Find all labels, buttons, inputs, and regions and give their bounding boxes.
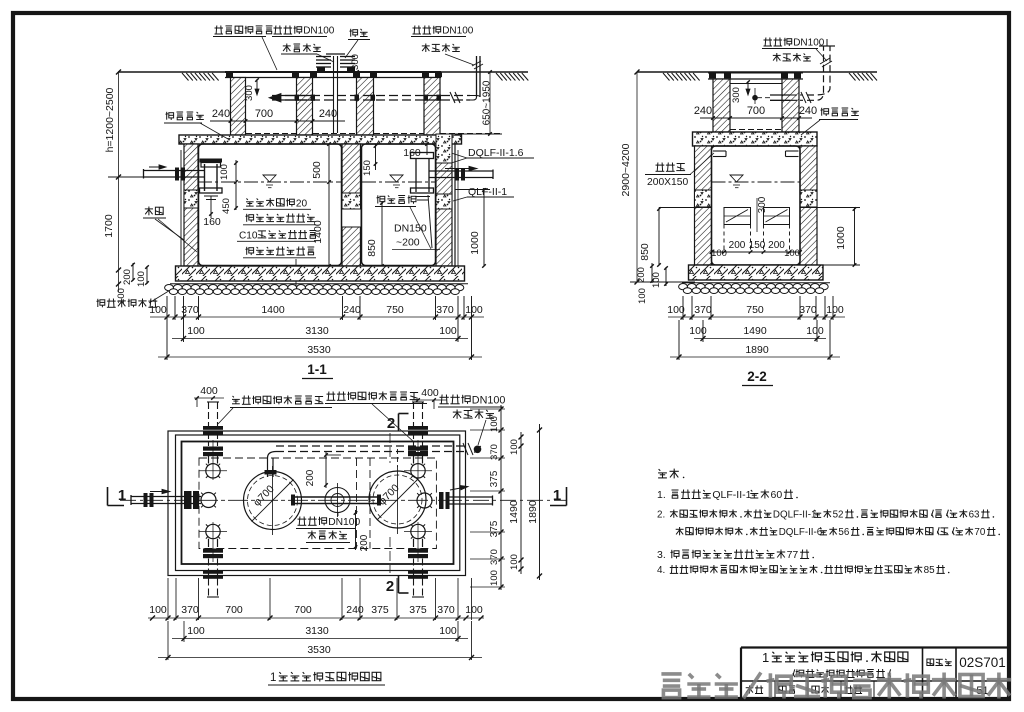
svg-text:370: 370 <box>437 604 455 616</box>
svg-text:1: 1 <box>553 487 561 504</box>
svg-text:400: 400 <box>421 387 439 399</box>
svg-text:h=1200~2500: h=1200~2500 <box>104 87 116 152</box>
svg-text:400: 400 <box>200 385 218 397</box>
svg-text:100: 100 <box>187 325 205 337</box>
svg-text:240: 240 <box>694 105 712 117</box>
svg-text:2: 2 <box>386 578 394 595</box>
svg-text:700: 700 <box>294 604 312 616</box>
svg-text:1490: 1490 <box>743 325 767 337</box>
svg-text:3530: 3530 <box>307 344 331 356</box>
svg-text:DN100: DN100 <box>793 38 825 49</box>
svg-text:375: 375 <box>409 604 427 616</box>
svg-text:100: 100 <box>509 439 520 455</box>
svg-text:1: 1 <box>762 650 769 665</box>
svg-text:100: 100 <box>187 625 205 637</box>
svg-text:52: 52 <box>833 510 844 521</box>
svg-text:C10: C10 <box>239 230 258 241</box>
svg-text:300: 300 <box>244 85 255 101</box>
svg-text:56: 56 <box>838 527 849 538</box>
svg-text:DQLF-II-1: DQLF-II-1 <box>773 510 817 521</box>
svg-text:3.: 3. <box>657 549 666 561</box>
svg-text:QLF-II-1: QLF-II-1 <box>712 489 751 501</box>
svg-text:200: 200 <box>122 269 133 285</box>
svg-text:450: 450 <box>221 198 232 214</box>
svg-text:2-2: 2-2 <box>747 369 767 384</box>
svg-text:100: 100 <box>667 304 685 316</box>
svg-text:160: 160 <box>203 216 221 228</box>
svg-text:QLF-II-1: QLF-II-1 <box>468 186 507 198</box>
svg-text:2: 2 <box>387 415 395 432</box>
svg-text:750: 750 <box>746 304 764 316</box>
svg-text:240: 240 <box>343 304 361 316</box>
svg-text:DN150: DN150 <box>394 223 427 235</box>
svg-text:700: 700 <box>255 108 273 120</box>
svg-text:1700: 1700 <box>103 214 115 238</box>
svg-text:60: 60 <box>771 489 783 501</box>
svg-text:3530: 3530 <box>307 644 331 656</box>
svg-text:DQLF-II-6: DQLF-II-6 <box>779 527 823 538</box>
svg-text:DN100: DN100 <box>442 26 474 37</box>
svg-text:150: 150 <box>362 160 373 176</box>
svg-text:370: 370 <box>181 604 199 616</box>
svg-text:100: 100 <box>149 304 167 316</box>
svg-text:63: 63 <box>969 510 980 521</box>
svg-text:300: 300 <box>757 196 768 213</box>
svg-text:1400: 1400 <box>261 304 285 316</box>
svg-text:850: 850 <box>366 239 378 257</box>
svg-text:240: 240 <box>319 108 337 120</box>
svg-text:100: 100 <box>439 325 457 337</box>
svg-text:100: 100 <box>784 248 800 259</box>
svg-text:375: 375 <box>489 520 500 537</box>
svg-text:240: 240 <box>212 108 230 120</box>
svg-text:850: 850 <box>639 243 651 261</box>
svg-text:3130: 3130 <box>305 625 329 637</box>
svg-text:~200: ~200 <box>396 237 420 249</box>
svg-text:300: 300 <box>350 54 361 70</box>
svg-text:200: 200 <box>359 534 370 551</box>
svg-text:370: 370 <box>181 304 199 316</box>
svg-text:DN100: DN100 <box>472 395 506 407</box>
svg-text:DQLF-II-1.6: DQLF-II-1.6 <box>468 147 524 159</box>
svg-text:700: 700 <box>747 105 765 117</box>
svg-text:1: 1 <box>270 672 276 684</box>
svg-text:100: 100 <box>637 288 648 304</box>
svg-text:70: 70 <box>974 527 985 538</box>
svg-text:200X150: 200X150 <box>647 177 689 188</box>
svg-text:77: 77 <box>787 549 799 561</box>
svg-text:100: 100 <box>136 271 147 287</box>
svg-text:1: 1 <box>118 487 126 504</box>
svg-text:1.: 1. <box>657 489 666 501</box>
svg-text:150: 150 <box>749 240 766 251</box>
svg-text:100: 100 <box>806 325 824 337</box>
svg-text:370: 370 <box>799 304 817 316</box>
svg-text:375: 375 <box>371 604 389 616</box>
svg-text:200: 200 <box>636 267 647 283</box>
svg-text:100: 100 <box>711 248 727 259</box>
svg-text:1400: 1400 <box>312 220 324 244</box>
svg-text:100: 100 <box>509 554 520 570</box>
svg-text:DN100: DN100 <box>303 26 335 37</box>
svg-text:370: 370 <box>489 549 500 565</box>
svg-text:100: 100 <box>489 416 500 432</box>
svg-text:200: 200 <box>729 240 746 251</box>
svg-text:1890: 1890 <box>527 500 539 524</box>
svg-text:3130: 3130 <box>305 325 329 337</box>
svg-text:200: 200 <box>305 469 316 486</box>
svg-text:1890: 1890 <box>745 344 769 356</box>
svg-text:370: 370 <box>489 444 500 460</box>
svg-text:370: 370 <box>436 304 454 316</box>
svg-text:700: 700 <box>225 604 243 616</box>
svg-text:100: 100 <box>439 625 457 637</box>
svg-text:100: 100 <box>149 604 167 616</box>
svg-text:750: 750 <box>386 304 404 316</box>
svg-text:2900~4200: 2900~4200 <box>620 143 632 196</box>
svg-text:1000: 1000 <box>469 231 481 255</box>
svg-text:375: 375 <box>489 470 500 487</box>
svg-text:370: 370 <box>694 304 712 316</box>
svg-text:02S701: 02S701 <box>959 655 1006 670</box>
svg-text:1000: 1000 <box>835 226 847 250</box>
svg-text:200: 200 <box>768 240 785 251</box>
svg-text:100: 100 <box>689 325 707 337</box>
svg-text:100: 100 <box>465 304 483 316</box>
svg-text:650~1950: 650~1950 <box>482 80 493 125</box>
svg-text:4.: 4. <box>657 565 665 576</box>
svg-text:100: 100 <box>219 164 230 180</box>
svg-text:85: 85 <box>924 565 935 576</box>
svg-text:300: 300 <box>731 87 742 103</box>
svg-text:100: 100 <box>465 604 483 616</box>
svg-text:2.: 2. <box>657 510 665 521</box>
svg-text:20: 20 <box>296 198 308 209</box>
svg-text:1490: 1490 <box>508 500 520 524</box>
svg-text:500: 500 <box>311 161 323 179</box>
svg-text:240: 240 <box>799 105 817 117</box>
svg-text:100: 100 <box>826 304 844 316</box>
svg-text:100: 100 <box>489 570 500 586</box>
svg-text:240: 240 <box>346 604 364 616</box>
svg-text:1-1: 1-1 <box>307 362 327 377</box>
